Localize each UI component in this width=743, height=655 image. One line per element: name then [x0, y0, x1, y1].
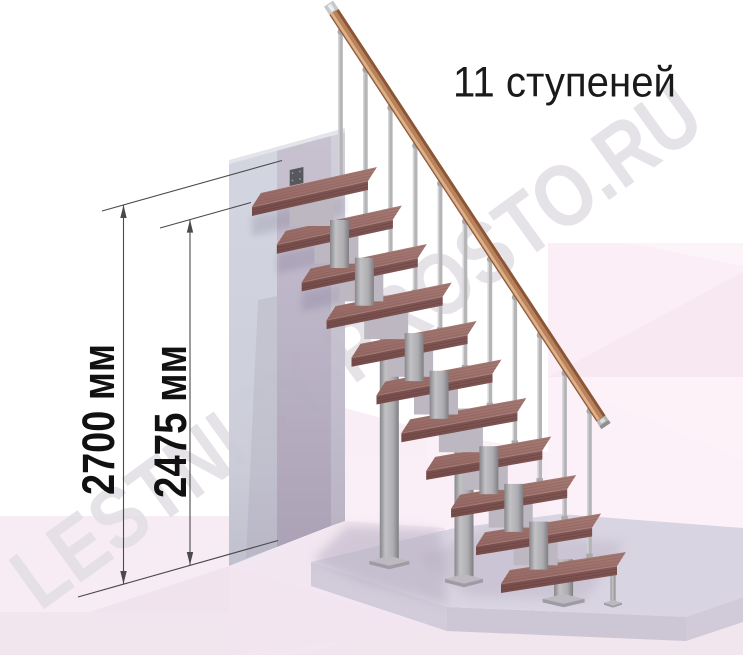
svg-text:2475 мм: 2475 мм — [145, 345, 196, 498]
svg-text:2700 мм: 2700 мм — [73, 344, 124, 495]
svg-text:11 ступеней: 11 ступеней — [453, 59, 676, 106]
